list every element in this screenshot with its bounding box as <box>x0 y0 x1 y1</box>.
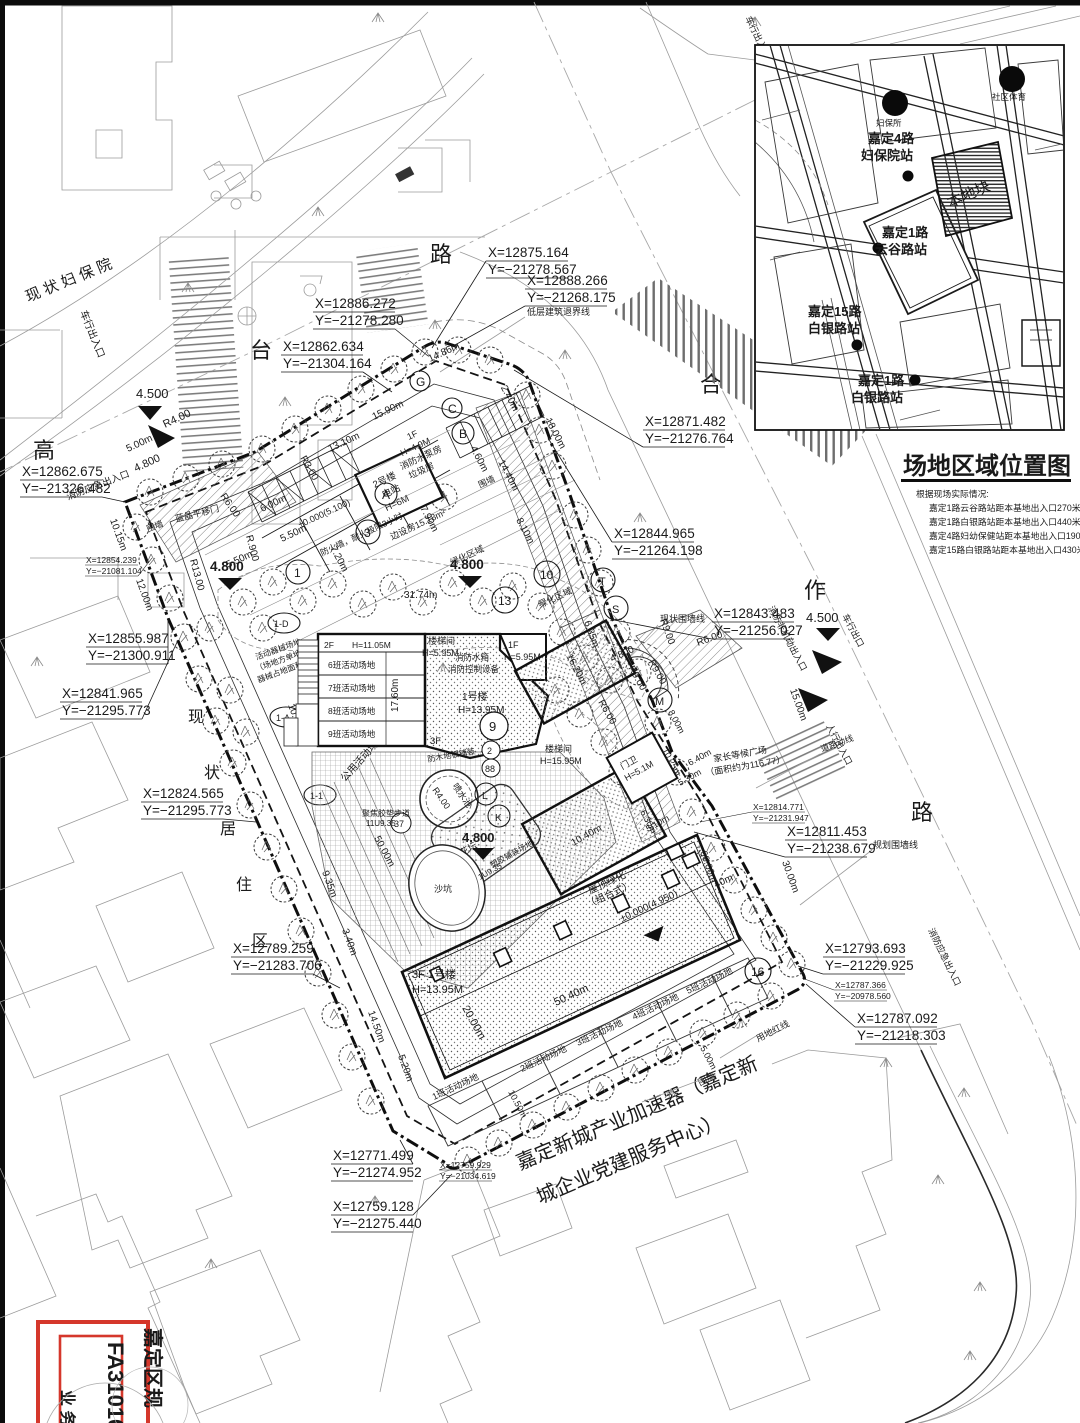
svg-text:H=13.95M: H=13.95M <box>412 984 463 996</box>
svg-text:X=12854.239: X=12854.239 <box>86 555 137 565</box>
svg-text:状: 状 <box>204 764 220 782</box>
svg-text:Y=−21283.706: Y=−21283.706 <box>233 958 322 973</box>
svg-text:云谷路站: 云谷路站 <box>875 242 927 257</box>
svg-text:X=12843.483: X=12843.483 <box>714 606 795 621</box>
svg-text:台: 台 <box>250 338 272 363</box>
svg-text:4.800: 4.800 <box>450 557 484 572</box>
svg-text:13: 13 <box>498 594 512 608</box>
svg-text:Y=−21326.482: Y=−21326.482 <box>22 481 111 496</box>
svg-text:B: B <box>459 427 467 441</box>
svg-text:嘉定1路云谷路站距本基地出入口270米。: 嘉定1路云谷路站距本基地出入口270米。 <box>929 502 1080 513</box>
svg-text:T: T <box>599 576 606 588</box>
svg-text:X=12811.453: X=12811.453 <box>787 824 867 839</box>
svg-text:K: K <box>495 813 502 824</box>
svg-text:X=12841.965: X=12841.965 <box>62 686 143 701</box>
svg-text:6班活动场地: 6班活动场地 <box>328 660 376 670</box>
svg-text:1: 1 <box>294 566 301 580</box>
svg-text:16: 16 <box>751 965 765 979</box>
svg-text:11U9.35: 11U9.35 <box>366 819 396 828</box>
svg-text:Y=−21295.773: Y=−21295.773 <box>62 703 151 718</box>
svg-text:1-D: 1-D <box>274 619 289 629</box>
svg-text:X=12875.164: X=12875.164 <box>488 245 569 260</box>
svg-text:FA31010: FA31010 <box>103 1342 128 1423</box>
svg-text:沙坑: 沙坑 <box>434 883 452 894</box>
svg-text:X=12793.693: X=12793.693 <box>825 941 906 956</box>
svg-text:白银路站: 白银路站 <box>851 390 903 405</box>
svg-text:X=12759.929: X=12759.929 <box>440 1160 491 1170</box>
svg-text:X=12824.565: X=12824.565 <box>143 786 224 801</box>
svg-text:妇保院站: 妇保院站 <box>860 148 913 163</box>
svg-text:Y=−21081.104: Y=−21081.104 <box>86 566 142 576</box>
svg-text:2: 2 <box>487 746 492 756</box>
svg-text:X=12759.128: X=12759.128 <box>333 1199 414 1214</box>
svg-text:妇保所: 妇保所 <box>876 118 902 128</box>
svg-text:S: S <box>612 604 619 616</box>
svg-text:根据现场实际情况:: 根据现场实际情况: <box>916 488 989 499</box>
svg-text:17.60m: 17.60m <box>390 679 401 712</box>
svg-text:嘉定4路: 嘉定4路 <box>867 131 915 146</box>
svg-text:1F: 1F <box>508 640 519 650</box>
svg-text:X=12787.366: X=12787.366 <box>835 980 886 990</box>
svg-text:3F: 3F <box>430 736 441 747</box>
svg-text:白银路站: 白银路站 <box>808 321 860 336</box>
svg-text:嘉定1路白银路站距本基地出入口440米。: 嘉定1路白银路站距本基地出入口440米。 <box>929 516 1080 527</box>
svg-text:业 务: 业 务 <box>58 1390 77 1423</box>
svg-text:X=12814.771: X=12814.771 <box>753 802 804 812</box>
svg-text:规划围墙线: 规划围墙线 <box>873 839 918 850</box>
svg-text:Y=−20978.560: Y=−20978.560 <box>835 991 891 1001</box>
svg-text:X=12787.092: X=12787.092 <box>857 1011 938 1026</box>
svg-text:Y=−21238.679: Y=−21238.679 <box>787 841 876 856</box>
svg-text:嘉定4路妇幼保健站距本基地出入口190米。: 嘉定4路妇幼保健站距本基地出入口190米。 <box>929 530 1080 541</box>
svg-text:L: L <box>482 791 488 802</box>
svg-text:高: 高 <box>33 438 55 463</box>
svg-text:Y=−21218.303: Y=−21218.303 <box>857 1028 946 1043</box>
svg-text:4.500: 4.500 <box>806 610 839 625</box>
svg-text:Y=−21274.952: Y=−21274.952 <box>333 1165 422 1180</box>
svg-text:A: A <box>382 488 390 502</box>
svg-text:X=12855.987: X=12855.987 <box>88 631 169 646</box>
svg-text:Y=−21231.947: Y=−21231.947 <box>753 813 809 823</box>
svg-text:社区体育: 社区体育 <box>992 92 1026 102</box>
svg-text:路: 路 <box>430 242 452 267</box>
svg-text:4.500: 4.500 <box>136 386 169 401</box>
svg-text:10: 10 <box>540 568 554 582</box>
svg-text:Y=−21256.027: Y=−21256.027 <box>714 623 803 638</box>
svg-text:住: 住 <box>236 876 252 894</box>
svg-text:嘉定15路: 嘉定15路 <box>807 304 862 319</box>
svg-text:2F: 2F <box>324 640 334 650</box>
svg-text:X=12886.272: X=12886.272 <box>315 296 396 311</box>
svg-text:X=12771.499: X=12771.499 <box>333 1148 414 1163</box>
svg-text:9班活动场地: 9班活动场地 <box>328 729 376 739</box>
svg-text:Y=−21229.925: Y=−21229.925 <box>825 958 914 973</box>
svg-text:低层建筑退界线: 低层建筑退界线 <box>527 306 590 317</box>
svg-text:X=12888.266: X=12888.266 <box>527 273 608 288</box>
svg-text:作: 作 <box>804 578 826 603</box>
svg-text:嘉定1路: 嘉定1路 <box>881 225 929 240</box>
svg-text:9: 9 <box>489 719 496 734</box>
svg-text:X=12862.675: X=12862.675 <box>22 464 103 479</box>
svg-text:路: 路 <box>911 800 933 825</box>
svg-text:Y=−21268.175: Y=−21268.175 <box>527 290 616 305</box>
svg-text:X=12862.634: X=12862.634 <box>283 339 364 354</box>
svg-text:Y=−21304.164: Y=−21304.164 <box>283 356 372 371</box>
svg-text:M: M <box>655 696 664 708</box>
svg-text:31.74m: 31.74m <box>404 590 437 601</box>
svg-text:Y=−21264.198: Y=−21264.198 <box>614 543 703 558</box>
svg-text:Y=−21300.911: Y=−21300.911 <box>88 648 176 663</box>
svg-text:C: C <box>448 402 457 416</box>
svg-text:4.800: 4.800 <box>462 830 495 845</box>
svg-text:G: G <box>416 375 425 389</box>
svg-text:现: 现 <box>188 709 204 726</box>
svg-text:聚焦胶垫步道: 聚焦胶垫步道 <box>362 808 410 818</box>
svg-text:嘉定15路白银路站距本基地出入口430米。: 嘉定15路白银路站距本基地出入口430米。 <box>929 544 1080 555</box>
svg-text:1号楼: 1号楼 <box>462 690 488 703</box>
svg-text:楼梯间: 楼梯间 <box>545 743 572 754</box>
svg-text:3F 1号楼: 3F 1号楼 <box>412 967 456 981</box>
svg-text:3: 3 <box>364 526 371 540</box>
svg-text:X=12871.482: X=12871.482 <box>645 414 726 429</box>
svg-text:Y=−21278.280: Y=−21278.280 <box>315 313 404 328</box>
svg-text:Y=−21276.764: Y=−21276.764 <box>645 431 734 446</box>
svg-text:Y=−21295.773: Y=−21295.773 <box>143 803 232 818</box>
svg-text:X=12844.965: X=12844.965 <box>614 526 695 541</box>
svg-text:Y=−21275.440: Y=−21275.440 <box>333 1216 422 1231</box>
svg-text:Y=−21034.619: Y=−21034.619 <box>440 1171 496 1181</box>
svg-text:居: 居 <box>220 821 236 838</box>
svg-text:7班活动场地: 7班活动场地 <box>328 683 376 693</box>
svg-text:8班活动场地: 8班活动场地 <box>328 706 376 716</box>
svg-text:88: 88 <box>485 764 495 774</box>
svg-text:X=12789.259: X=12789.259 <box>233 941 314 956</box>
svg-text:嘉定1路: 嘉定1路 <box>857 373 905 388</box>
svg-text:H=11.05M: H=11.05M <box>352 640 391 650</box>
svg-text:H=15.95M: H=15.95M <box>540 756 582 766</box>
svg-text:场地区域位置图: 场地区域位置图 <box>903 452 1071 480</box>
